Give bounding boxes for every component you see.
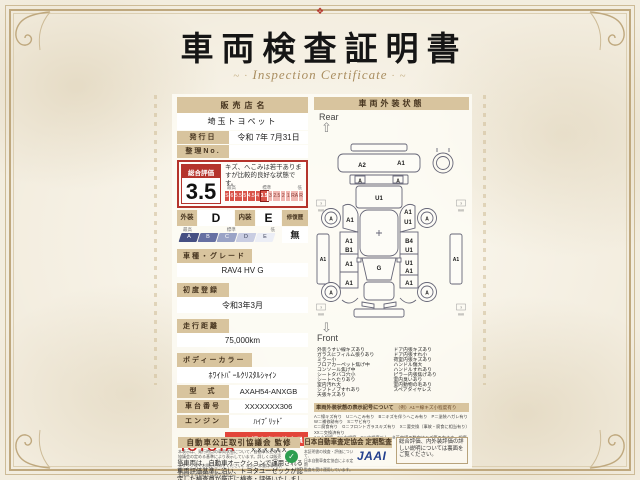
overall-rating-box: 総合評価 3.5 キズ、へこみは若干ありますが比較的良好な状態です。 最高 標準… (177, 160, 308, 208)
damage-mark: B4 (405, 239, 413, 245)
right-mirror (397, 258, 401, 262)
hood (364, 282, 394, 300)
fair-trade-note: 本表示は、発行時点の車両状態について、自動車公正取引 協議会の定める基準により表… (178, 450, 282, 478)
rear-arrow-icon: ⇧ (321, 120, 332, 136)
grade-step: A (179, 233, 200, 242)
damage-mark: A (329, 217, 333, 223)
condition-notes: 外装うすい線キズあり ガラスにフィルム張りあり ミラー小 フロアカーペット焦げ中… (317, 349, 468, 399)
rating-step: 2.5 (273, 191, 281, 201)
condition-notes-right: ドア内張キズあり ドア内張すれ小 荷室内張キズあり ハンドル傷大 ハンドルすれあ… (394, 349, 469, 399)
damage-mark: A1 (345, 281, 353, 287)
tread-depth-mark: ? mm (457, 304, 466, 317)
interior-grade-label: 内装 (235, 210, 255, 226)
svg-text:mm: mm (458, 209, 464, 213)
corner-flourish-icon (588, 428, 630, 470)
car-damage-diagram: ? mm ? mm ? mm ? mm A2 A1 A A U1 A A A1 … (316, 142, 466, 320)
front-bumper (354, 309, 404, 317)
damage-mark: A1 (346, 218, 354, 224)
tread-depth-mark: ? mm (317, 200, 326, 213)
damage-mark: A1 (397, 161, 405, 167)
damage-mark: A2 (358, 163, 366, 169)
rear-spoiler (351, 144, 407, 151)
overall-score-cell: 総合評価 3.5 (181, 164, 221, 204)
exterior-grade-label: 外装 (177, 210, 197, 226)
grade-step: E (255, 233, 276, 242)
front-label: Front (317, 333, 338, 343)
rear-bumper (338, 154, 420, 172)
repair-history-value: 無 (282, 227, 308, 243)
damage-mark: A1 (453, 257, 460, 263)
damage-mark: U1 (375, 196, 383, 202)
left-headlight (362, 302, 374, 308)
overall-score: 3.5 (182, 178, 220, 206)
right-headlight (384, 302, 396, 308)
damage-mark: A1 (345, 239, 353, 245)
inspection-certificate: ❖ 車両検査証明書 ~ · Inspection Certificate · ~… (0, 0, 640, 480)
dealer-header: 販売店名 (177, 97, 308, 113)
note-item: スペアタイヤレス (394, 389, 469, 394)
ref-no-label: 整理No. (177, 145, 229, 158)
damage-mark: G (377, 266, 382, 272)
svg-text:?: ? (460, 202, 462, 206)
damage-mark: A1 (404, 210, 412, 216)
svg-text:?: ? (460, 306, 462, 310)
jaai-audit-bar: 日本自動車査定協会 定期監査 (304, 437, 392, 448)
damage-mark: A (358, 179, 362, 185)
right-front-fender (400, 298, 416, 303)
damage-mark: A1 (405, 269, 413, 275)
exterior-grade-value: D (198, 210, 234, 226)
crest-icon: ❖ (0, 6, 640, 17)
page-subtitle: ~ · Inspection Certificate · ~ (0, 67, 640, 83)
field-body-color: ボディーカラー ﾎﾜｲﾄﾊﾟｰﾙｸﾘｽﾀﾙｼｬｲﾝ (177, 349, 308, 383)
tread-depth-mark: ? mm (457, 200, 466, 213)
overall-rating-label: 総合評価 (182, 165, 220, 178)
grade-scale: 最高 標準 低 A B C D E (177, 227, 281, 243)
jaai-logo: JAAI (357, 449, 386, 463)
damage-mark: A (396, 179, 400, 185)
grade-row: 外装 D 内装 E 修復歴 (177, 210, 308, 226)
damage-mark: A (425, 291, 429, 297)
rating-scale: S 6 5.5 5 4.5 4 3.5 3 2.5 2 1 RA R (225, 191, 304, 201)
field-model-grade: 車種・グレード RAV4 HV G (177, 245, 308, 277)
page-title: 車両検査証明書 (0, 22, 640, 70)
left-mirror (357, 258, 361, 262)
side-ornament (483, 95, 486, 385)
damage-mark: U1 (405, 261, 413, 267)
jaai-note: 本証明書の検査・評価について、 日本自動車査定協会による定期 監査を受け運用して… (304, 450, 356, 472)
right-quarter-panel (400, 204, 415, 232)
grade-step: D (236, 233, 257, 242)
damage-mark: U1 (404, 220, 412, 226)
certification-seal-icon: ✓ (285, 450, 298, 463)
svg-text:?: ? (320, 202, 322, 206)
damage-mark: A (425, 217, 429, 223)
fair-trade-council-bar: 自動車公正取引協議会 監修 (178, 437, 300, 448)
svg-text:mm: mm (318, 209, 324, 213)
grade-step: C (217, 233, 238, 242)
rating-step: R (299, 191, 304, 201)
rating-step: 4.5 (248, 191, 256, 201)
interior-grade-value: E (256, 210, 281, 226)
grade-step: B (198, 233, 219, 242)
field-mileage: 走行距離 75,000km (177, 315, 308, 347)
back-page-info-box: 総合評価、内外装評価の詳しい説明については裏面をご覧ください。 (396, 437, 468, 464)
ref-no-row: 整理No. (177, 145, 308, 158)
grade-scale-row: 最高 標準 低 A B C D E 無 (177, 227, 308, 243)
issue-date-label: 発行日 (177, 131, 229, 144)
rating-step: RA (291, 191, 299, 201)
field-chassis-no: 車台番号 XXXXXXX306 (177, 400, 308, 413)
condition-notes-left: 外装うすい線キズあり ガラスにフィルム張りあり ミラー小 フロアカーペット焦げ中… (317, 349, 392, 399)
issue-date-value: 令和 7年 7月31日 (229, 131, 308, 144)
left-front-fender (342, 298, 358, 303)
dealer-name: 埼玉トヨペット (177, 113, 308, 130)
issue-date-row: 発行日 令和 7年 7月31日 (177, 131, 308, 144)
spare-tire (433, 153, 453, 173)
field-first-registration: 初度登録 令和3年3月 (177, 279, 308, 313)
svg-text:mm: mm (318, 313, 324, 317)
rating-step-selected: 3.5 (261, 191, 269, 201)
repair-history-label: 修復歴 (282, 210, 308, 226)
svg-text:mm: mm (458, 313, 464, 317)
damage-mark: U1 (405, 248, 413, 254)
ref-no-value (229, 145, 308, 158)
damage-mark: A1 (345, 262, 353, 268)
svg-text:?: ? (320, 306, 322, 310)
corner-flourish-icon (10, 428, 52, 470)
field-model-code: 型 式 AXAH54-ANXGB (177, 385, 308, 398)
exterior-condition-header: 車両外装状態 (314, 97, 469, 110)
field-engine: エンジン ﾊｲﾌﾞﾘｯﾄﾞ (177, 415, 308, 428)
damage-mark: B1 (345, 248, 353, 254)
vehicle-info-column: 販売店名 埼玉トヨペット 発行日 令和 7年 7月31日 整理No. 総合評価 … (177, 97, 308, 480)
damage-mark: A (329, 291, 333, 297)
note-item: 天張キズあり (317, 394, 392, 399)
tread-depth-mark: ? mm (317, 304, 326, 317)
overall-detail: キズ、へこみは若干ありますが比較的良好な状態です。 最高 標準 低 S 6 5.… (225, 162, 304, 201)
damage-mark: A1 (405, 281, 413, 287)
damage-mark: A1 (320, 257, 327, 263)
overall-comment: キズ、へこみは若干ありますが比較的良好な状態です。 (225, 162, 304, 185)
spare-tire-ticks (437, 148, 449, 152)
legend-header: 車両外装状態の表示記号について（例）A1＝線キズ小程度有り (314, 403, 469, 412)
rating-step: 5.5 (235, 191, 243, 201)
side-ornament (154, 95, 157, 385)
